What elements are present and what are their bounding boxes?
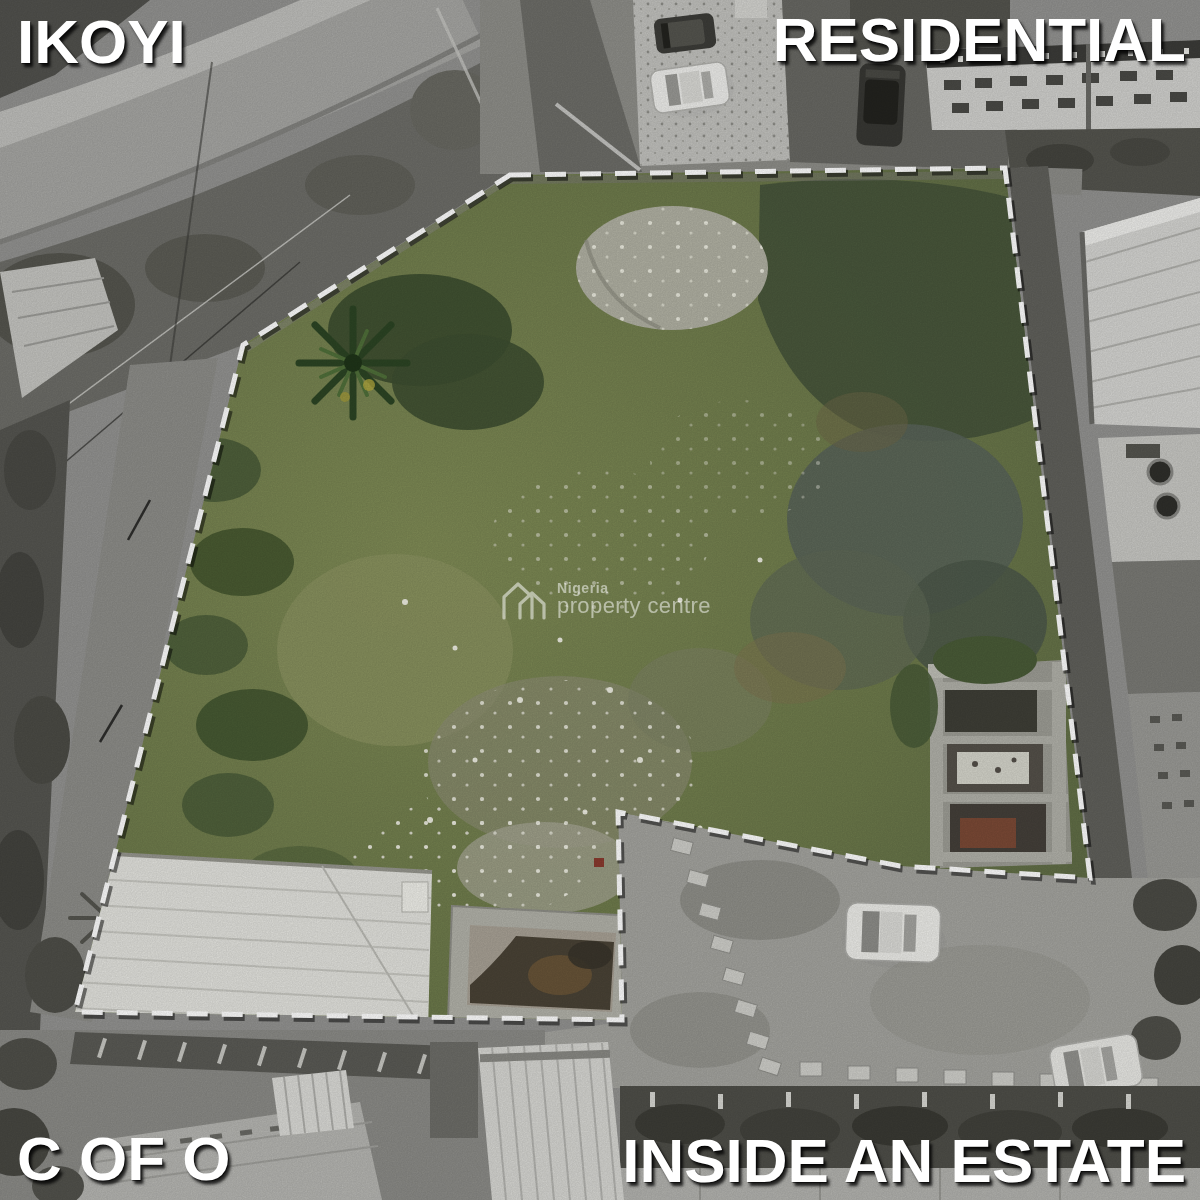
estate-label: INSIDE AN ESTATE [622,1130,1186,1192]
npc-double-house-logo-icon [500,578,548,620]
listing-photo-canvas: IKOYI RESIDENTIAL C OF O INSIDE AN ESTAT… [0,0,1200,1200]
watermark-brand-bottom: property centre [557,595,711,617]
property-type-label: RESIDENTIAL [773,9,1186,71]
watermark: Nigeria property centre [500,578,711,620]
location-label: IKOYI [17,11,186,73]
watermark-text: Nigeria property centre [557,581,711,618]
title-document-label: C OF O [17,1128,231,1190]
